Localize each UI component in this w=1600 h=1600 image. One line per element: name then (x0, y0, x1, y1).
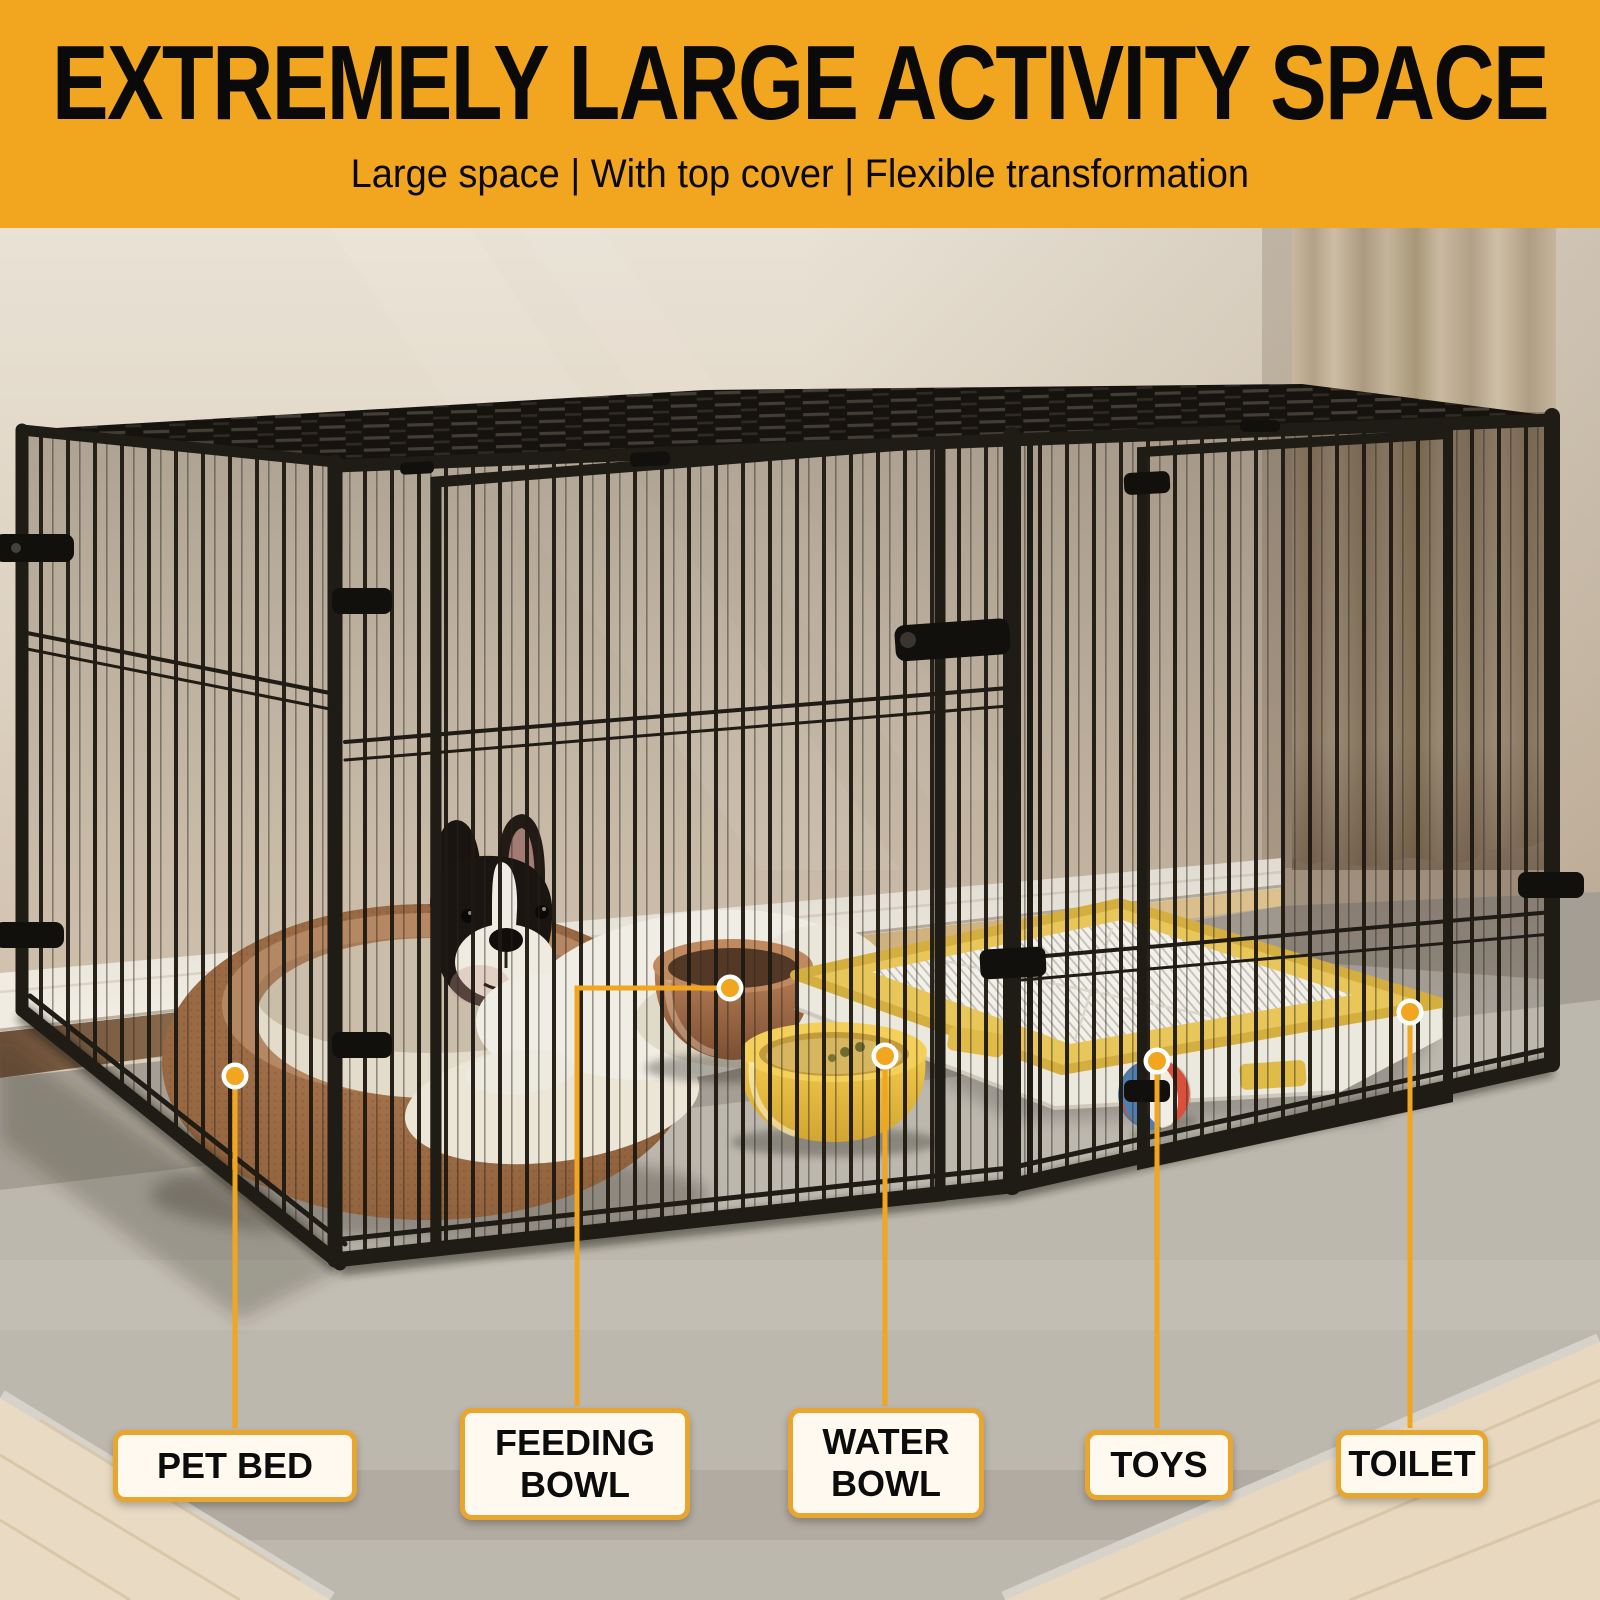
page-subtitle: Large space | With top cover | Flexible … (351, 152, 1249, 196)
callout-label-pet-bed: PET BED (113, 1430, 357, 1502)
callout-dot-feeding-bowl (717, 975, 744, 1002)
callout-label-water-bowl: WATER BOWL (788, 1408, 984, 1518)
header-banner: EXTREMELY LARGE ACTIVITY SPACE Large spa… (0, 0, 1600, 228)
scene-photo (0, 0, 1600, 1600)
callout-dot-toys (1144, 1048, 1171, 1075)
callout-dot-pet-bed (222, 1063, 249, 1090)
callout-label-toilet: TOILET (1336, 1430, 1488, 1498)
page-title: EXTREMELY LARGE ACTIVITY SPACE (52, 30, 1548, 136)
product-infographic: EXTREMELY LARGE ACTIVITY SPACE Large spa… (0, 0, 1600, 1600)
callout-dot-toilet (1397, 999, 1424, 1026)
callout-label-feeding-bowl: FEEDING BOWL (460, 1408, 690, 1520)
callout-dot-water-bowl (872, 1043, 899, 1070)
callout-label-toys: TOYS (1085, 1430, 1233, 1500)
